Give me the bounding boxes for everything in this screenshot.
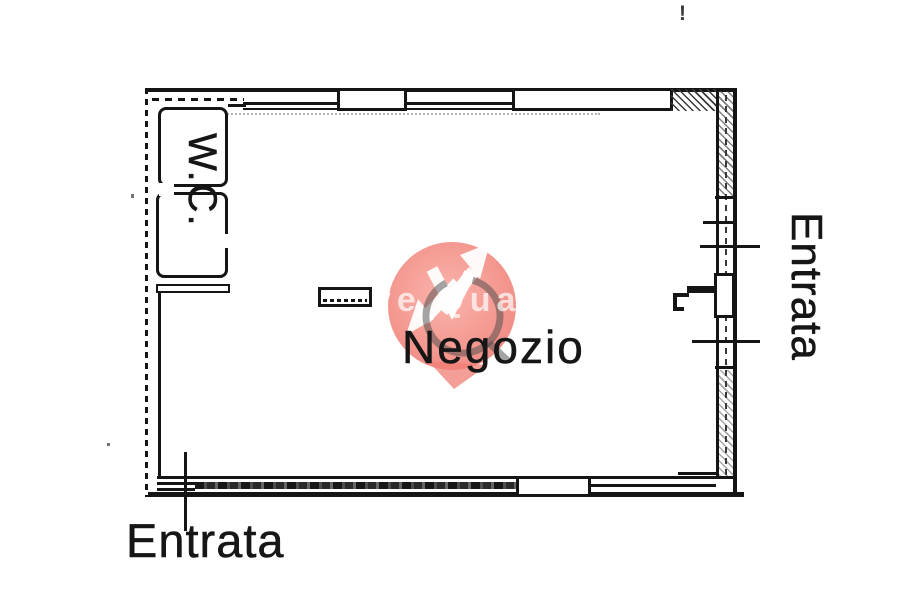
- stray-exclamation-mark: !: [679, 2, 686, 26]
- door-jamb-block: [714, 273, 735, 318]
- window-strip-2-line-b: [407, 108, 513, 111]
- bottom-wall-mottled-band: [195, 482, 516, 489]
- entrance-label-right: Entrata: [784, 212, 828, 361]
- right-wall-segment-tick-2: [703, 221, 736, 224]
- window-strip-2-line-a: [407, 102, 513, 105]
- top-wall-pillar-2: [512, 88, 673, 111]
- bottom-wall-pillar: [516, 476, 591, 497]
- right-wall-hatched-bottom: [719, 370, 733, 476]
- right-window-tick-lower: [692, 340, 760, 343]
- door-stop-foot: [673, 307, 684, 311]
- stray-speck-2: [107, 443, 110, 446]
- left-wall-dashed-line: [145, 88, 148, 497]
- wc-inner-door-gap: [159, 183, 174, 196]
- window-strip-1-line-a: [243, 102, 339, 105]
- bottom-wall-left-line-a: [157, 482, 195, 485]
- watermark-text: ve Quat: [372, 281, 539, 319]
- wc-niche-bar: [156, 284, 230, 293]
- column-symbol-dashes: [323, 299, 367, 302]
- right-window-tick-upper: [700, 245, 760, 248]
- wc-label: W.C.: [182, 133, 222, 228]
- wc-door-opening: [217, 234, 231, 248]
- top-wall-pillar-1: [337, 88, 407, 111]
- bottom-wall-left-line-b: [157, 488, 195, 491]
- bottom-wall-outer-line: [148, 492, 744, 497]
- bottom-wall-mid-line-right: [591, 484, 716, 487]
- floorplan-page: ve Quat Negoz: [0, 0, 900, 600]
- top-wall-dashdot-segment: [152, 98, 244, 101]
- window-strip-1-line-b: [243, 108, 339, 111]
- top-wall-hatched-segment: [671, 89, 717, 111]
- room-label-negozio: Negozio: [402, 324, 585, 370]
- bottom-wall-inner-line: [157, 476, 736, 479]
- stray-speck-1: [131, 194, 134, 198]
- bottom-wall-step-line: [678, 472, 718, 475]
- right-wall-segment-tick-3: [715, 366, 733, 369]
- left-wall-inner-line: [158, 292, 161, 478]
- column-symbol: [318, 287, 372, 307]
- entrance-label-bottom: Entrata: [126, 517, 285, 564]
- right-wall-segment-tick-1: [715, 196, 733, 199]
- watermark-logo: ve Quat: [368, 213, 568, 403]
- door-leaf: [687, 286, 716, 293]
- right-wall-hatched-top: [719, 91, 733, 197]
